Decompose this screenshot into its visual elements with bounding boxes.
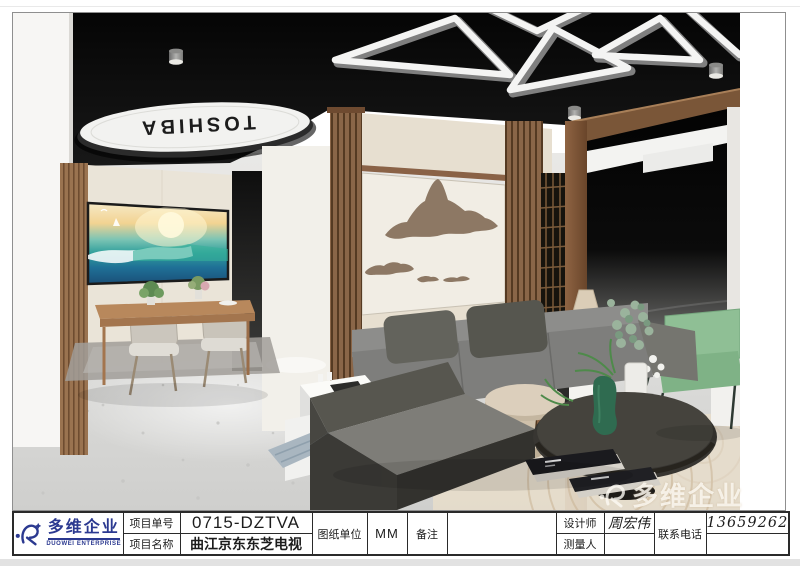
designer-value: 周宏伟 bbox=[604, 512, 654, 534]
drawing-unit-value: MM bbox=[367, 512, 407, 555]
slat-screen-cap bbox=[327, 107, 365, 113]
surveyor-label: 测量人 bbox=[556, 534, 604, 556]
company-name-cn: 多维企业 bbox=[48, 520, 120, 540]
green-vase bbox=[593, 376, 617, 435]
company-name-en: DUOWEI ENTERPRISE bbox=[46, 541, 121, 547]
phone-value: 13659262305 bbox=[706, 512, 789, 534]
phone-label: 联系电话 bbox=[654, 512, 706, 555]
company-logo-cell: 多维企业 DUOWEI ENTERPRISE bbox=[13, 512, 123, 555]
drawing-unit-label: 图纸单位 bbox=[312, 512, 367, 555]
phone-value-row2 bbox=[706, 534, 789, 556]
remark-value bbox=[447, 512, 556, 555]
page-top-hairline bbox=[0, 6, 800, 7]
duowei-logo-icon bbox=[15, 519, 41, 549]
interior-render: TOSHIBA bbox=[13, 13, 740, 510]
surveyor-value bbox=[604, 534, 654, 556]
drawing-sheet: TOSHIBA bbox=[0, 0, 800, 566]
project-no-value: 0715-DZTVA bbox=[180, 512, 312, 534]
left-wood-slat-panel bbox=[60, 163, 88, 455]
project-name-label: 项目名称 bbox=[123, 534, 180, 556]
page-bottom-strip bbox=[0, 559, 800, 566]
designer-label: 设计师 bbox=[556, 512, 604, 534]
project-name-value: 曲江京东东芝电视 bbox=[180, 534, 312, 556]
remark-label: 备注 bbox=[407, 512, 447, 555]
project-no-label: 项目单号 bbox=[123, 512, 180, 534]
tv-screen bbox=[88, 203, 228, 284]
title-block: 多维企业 DUOWEI ENTERPRISE 项目单号 0715-DZTVA 图… bbox=[12, 511, 790, 556]
